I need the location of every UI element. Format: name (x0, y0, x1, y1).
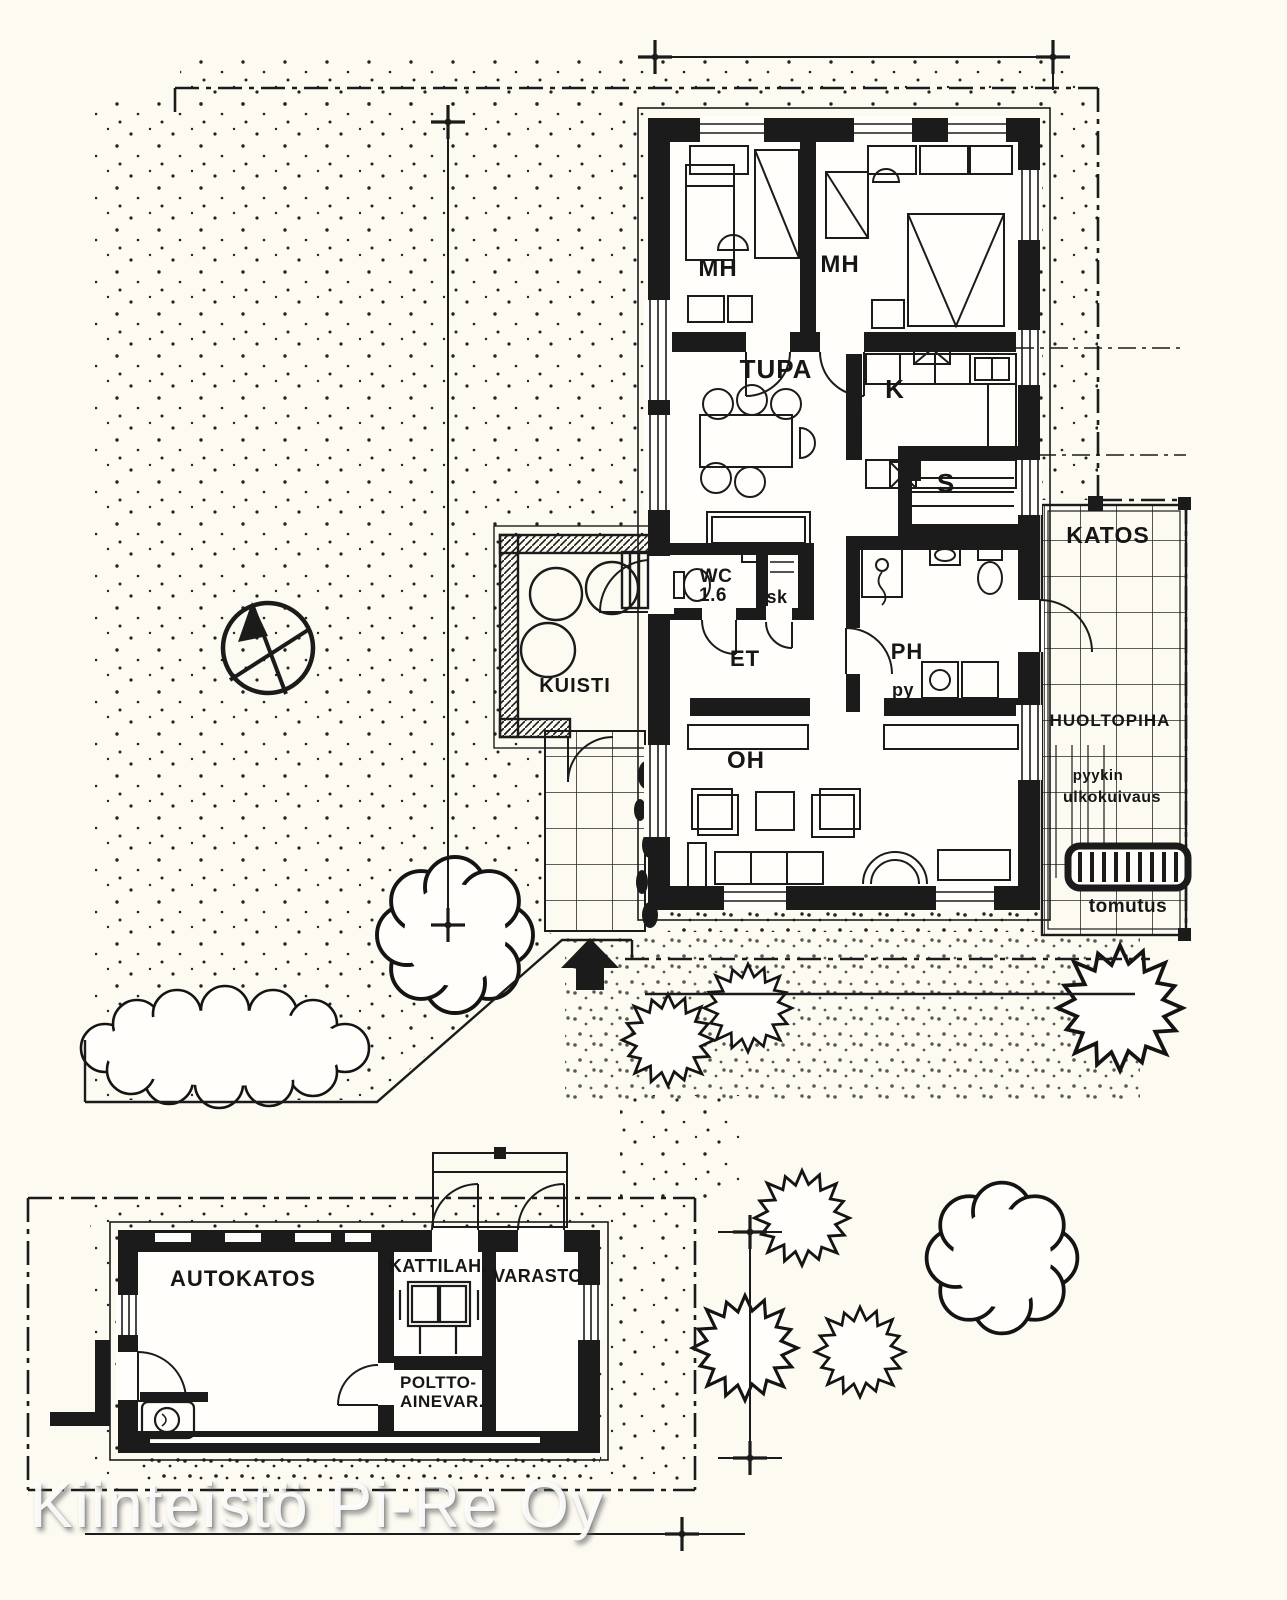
tree (927, 1183, 1078, 1334)
label-ulkokuivaus: ulkokuivaus (1063, 789, 1161, 806)
floor-plan-canvas: KATOS HUOLTOPIHA pyykin ulkokuivaus tomu… (0, 0, 1287, 1600)
carpet-rack (1068, 846, 1188, 888)
label-mh2: MH (820, 251, 859, 278)
tree (815, 1307, 905, 1397)
label-tupa: TUPA (740, 354, 813, 384)
tree (1058, 946, 1183, 1071)
label-kattilah: KATTILAH. (389, 1256, 487, 1276)
label-mh1: MH (698, 255, 737, 282)
label-tomutus: tomutus (1089, 896, 1167, 917)
label-s: S (937, 468, 955, 498)
scanned-floor-plan-page: KATOS HUOLTOPIHA pyykin ulkokuivaus tomu… (0, 0, 1287, 1600)
tree (693, 1296, 798, 1401)
tree (704, 964, 792, 1052)
label-poltto1: POLTTO- (400, 1373, 477, 1392)
service-yard: KATOS HUOLTOPIHA pyykin ulkokuivaus tomu… (1042, 505, 1188, 935)
label-sk: sk (766, 587, 788, 607)
label-poltto2: AINEVAR. (400, 1392, 484, 1411)
label-wc-area: 1.6 (699, 585, 727, 606)
label-autokatos: AUTOKATOS (170, 1266, 316, 1291)
label-varasto: VARASTO (493, 1266, 583, 1286)
hedge-row (81, 986, 369, 1108)
label-huoltopiha: HUOLTOPIHA (1050, 711, 1171, 730)
label-katos: KATOS (1066, 522, 1149, 548)
tree (755, 1171, 850, 1266)
label-k: K (885, 374, 905, 404)
label-pyykin: pyykin (1073, 767, 1124, 784)
label-et: ET (730, 646, 760, 671)
label-ph: PH (891, 639, 924, 664)
tree (377, 857, 533, 1013)
tree (622, 994, 714, 1086)
label-kuisti: KUISTI (539, 675, 611, 697)
label-oh: OH (727, 747, 765, 774)
label-py: py (892, 680, 914, 700)
label-wc: WC (700, 566, 733, 587)
